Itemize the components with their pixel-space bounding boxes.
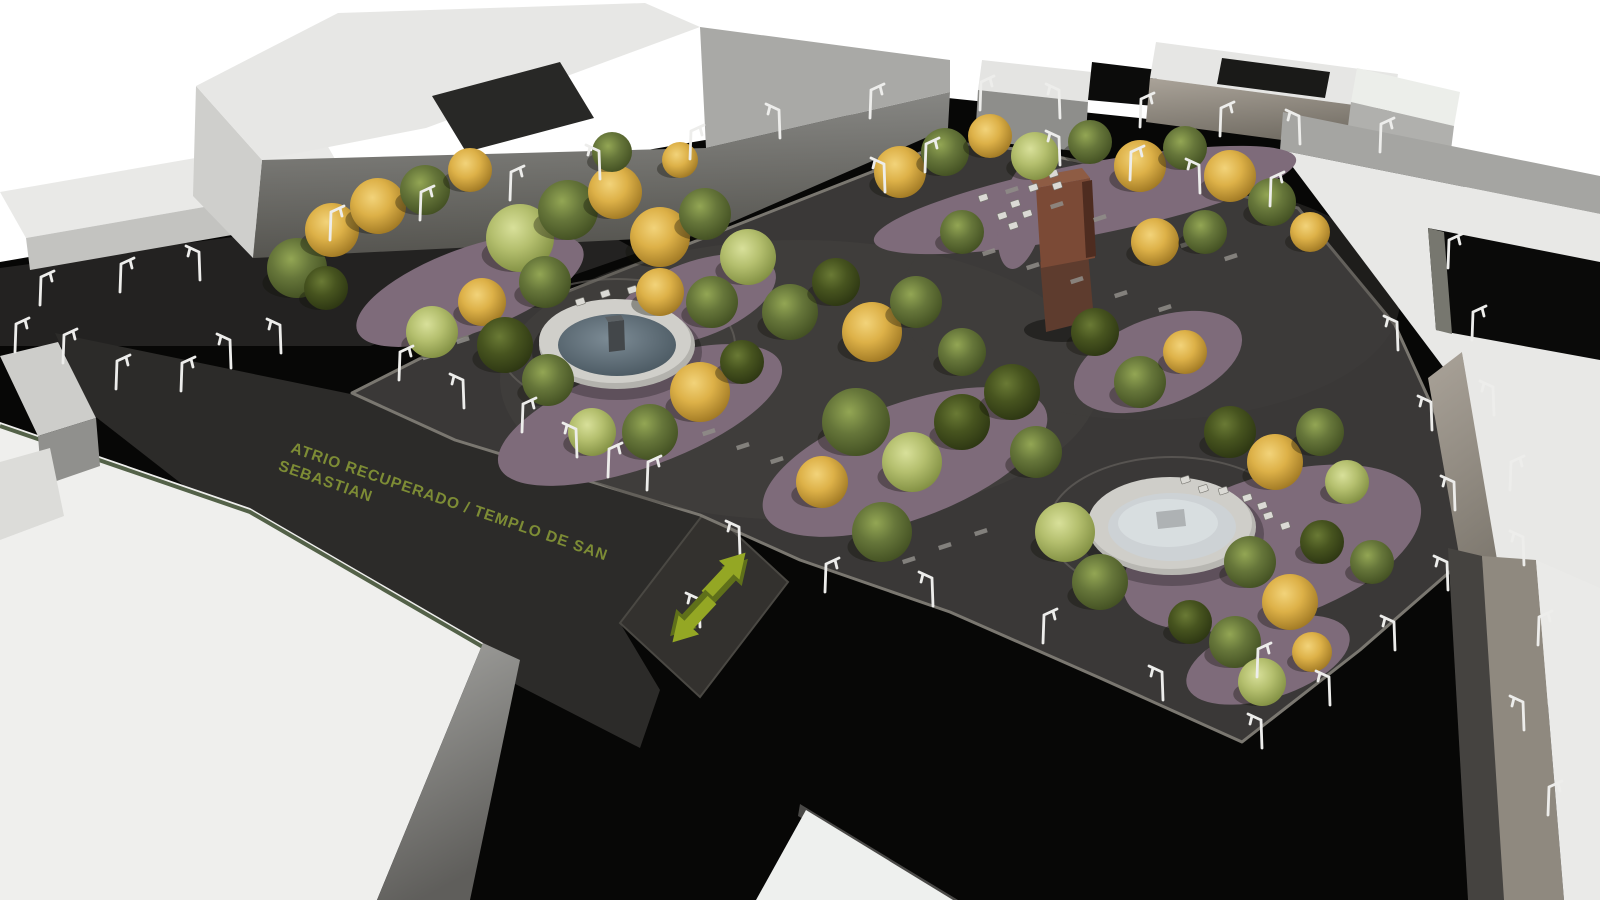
tree-canopy xyxy=(522,354,574,406)
tree-canopy xyxy=(796,456,848,508)
tree-canopy xyxy=(812,258,860,306)
tree-canopy xyxy=(1072,554,1128,610)
fountain-center-block xyxy=(1156,509,1186,529)
tree-canopy xyxy=(304,266,348,310)
tree-canopy xyxy=(1296,408,1344,456)
tree-canopy xyxy=(1290,212,1330,252)
tree-canopy xyxy=(1224,536,1276,588)
tree-canopy xyxy=(679,188,731,240)
fountain-pillar xyxy=(608,320,625,352)
tree-canopy xyxy=(1010,426,1062,478)
tree-canopy xyxy=(1204,150,1256,202)
tree-canopy xyxy=(940,210,984,254)
tree-canopy xyxy=(588,165,642,219)
tree-canopy xyxy=(921,128,969,176)
tree-canopy xyxy=(852,502,912,562)
tree-canopy xyxy=(1292,632,1332,672)
tree-canopy xyxy=(938,328,986,376)
tree-canopy xyxy=(519,256,571,308)
tree-canopy xyxy=(1350,540,1394,584)
tree-canopy xyxy=(874,146,926,198)
tree-canopy xyxy=(968,114,1012,158)
tree-canopy xyxy=(1068,120,1112,164)
tree-canopy xyxy=(1300,520,1344,564)
tree-canopy xyxy=(1238,658,1286,706)
tree-canopy xyxy=(1131,218,1179,266)
scene-svg: ATRIO RECUPERADO / TEMPLO DE SAN SEBASTI… xyxy=(0,0,1600,900)
tree-canopy xyxy=(720,340,764,384)
tree-canopy xyxy=(890,276,942,328)
tree-canopy xyxy=(406,306,458,358)
tree-canopy xyxy=(984,364,1040,420)
tree-canopy xyxy=(1163,330,1207,374)
tree-canopy xyxy=(686,276,738,328)
tree-canopy xyxy=(1262,574,1318,630)
tree-canopy xyxy=(448,148,492,192)
tree-canopy xyxy=(477,317,533,373)
tree-canopy xyxy=(662,142,698,178)
tree-canopy xyxy=(636,268,684,316)
tree-canopy xyxy=(622,404,678,460)
tree-canopy xyxy=(1325,460,1369,504)
tree-canopy xyxy=(1035,502,1095,562)
architectural-rendering: ATRIO RECUPERADO / TEMPLO DE SAN SEBASTI… xyxy=(0,0,1600,900)
tree-canopy xyxy=(822,388,890,456)
tree-canopy xyxy=(1011,132,1059,180)
tree-canopy xyxy=(1071,308,1119,356)
tree-canopy xyxy=(1183,210,1227,254)
tree-canopy xyxy=(1168,600,1212,644)
tree-canopy xyxy=(1163,126,1207,170)
tree-canopy xyxy=(1204,406,1256,458)
tree-canopy xyxy=(720,229,776,285)
